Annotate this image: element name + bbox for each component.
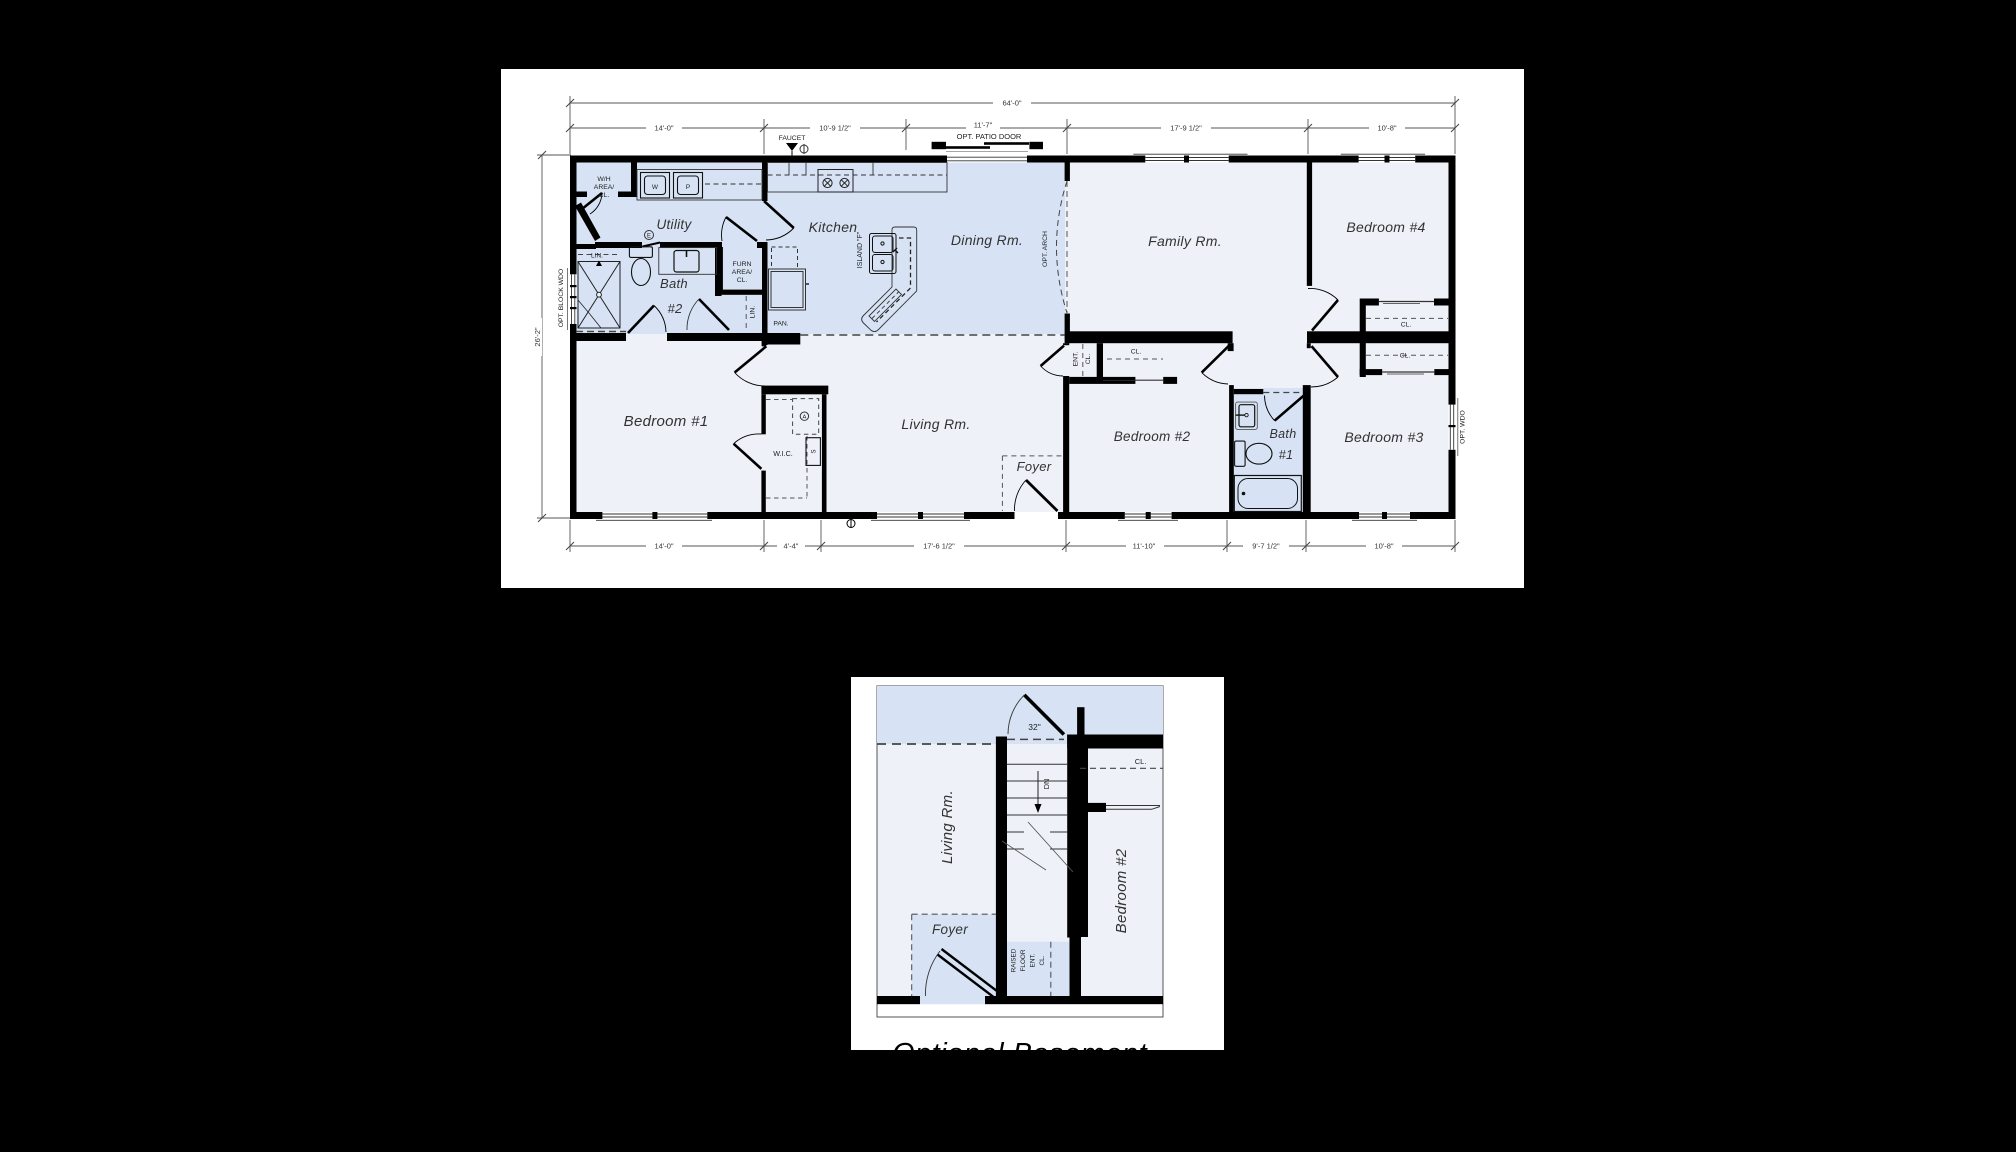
svg-text:FAUCET: FAUCET xyxy=(779,135,806,142)
svg-text:Bedroom #1: Bedroom #1 xyxy=(624,413,709,430)
svg-text:Bedroom #4: Bedroom #4 xyxy=(1346,219,1425,235)
svg-text:ENT.: ENT. xyxy=(1030,953,1037,967)
svg-text:PAN.: PAN. xyxy=(773,321,788,328)
svg-text:Kitchen: Kitchen xyxy=(809,219,858,235)
svg-text:Bath: Bath xyxy=(1270,427,1297,441)
svg-text:10'-9 1/2": 10'-9 1/2" xyxy=(819,124,851,133)
svg-text:P: P xyxy=(686,184,690,191)
svg-text:OPT. BLOCK WDO: OPT. BLOCK WDO xyxy=(558,269,565,328)
svg-text:S: S xyxy=(811,449,818,453)
svg-text:LIN.: LIN. xyxy=(750,306,757,319)
svg-text:W.I.C.: W.I.C. xyxy=(773,449,793,458)
svg-text:14'-0": 14'-0" xyxy=(654,542,673,551)
svg-text:AREA/: AREA/ xyxy=(732,269,753,276)
svg-text:11'-10": 11'-10" xyxy=(1133,542,1156,551)
svg-text:64'-0": 64'-0" xyxy=(1002,99,1021,108)
svg-text:CL.: CL. xyxy=(1400,353,1411,360)
svg-text:CL.: CL. xyxy=(1135,757,1147,766)
svg-text:CL.: CL. xyxy=(1085,354,1092,365)
svg-text:Bedroom #3: Bedroom #3 xyxy=(1344,429,1423,445)
svg-text:AREA/: AREA/ xyxy=(594,184,615,191)
svg-text:#1: #1 xyxy=(1279,448,1294,462)
svg-text:14'-0": 14'-0" xyxy=(654,124,673,133)
svg-text:17'-9 1/2": 17'-9 1/2" xyxy=(1170,124,1202,133)
svg-text:#2: #2 xyxy=(667,301,683,316)
svg-text:W: W xyxy=(652,184,659,191)
svg-text:FLOOR: FLOOR xyxy=(1020,949,1027,971)
svg-text:OPT. ARCH: OPT. ARCH xyxy=(1042,231,1049,267)
svg-text:CL.: CL. xyxy=(1401,322,1412,329)
svg-text:Optional Basement: Optional Basement xyxy=(892,1038,1149,1070)
svg-text:32": 32" xyxy=(1028,722,1040,732)
svg-text:OPT. PATIO DOOR: OPT. PATIO DOOR xyxy=(957,132,1022,141)
svg-text:Foyer: Foyer xyxy=(1017,459,1052,474)
svg-text:FURN: FURN xyxy=(733,261,752,268)
svg-text:CL.: CL. xyxy=(1131,349,1142,356)
svg-text:LIN.: LIN. xyxy=(591,253,603,260)
svg-text:Living Rm.: Living Rm. xyxy=(939,790,956,864)
svg-text:W/H: W/H xyxy=(597,176,610,183)
svg-text:DN: DN xyxy=(1042,779,1051,790)
svg-text:CL.: CL. xyxy=(737,277,748,284)
svg-text:Bedroom #2: Bedroom #2 xyxy=(1114,429,1191,444)
svg-text:CL.: CL. xyxy=(1039,955,1046,965)
svg-text:Family Rm.: Family Rm. xyxy=(1148,233,1222,249)
svg-text:E: E xyxy=(647,234,651,240)
svg-text:Utility: Utility xyxy=(656,217,692,232)
svg-text:4'-4": 4'-4" xyxy=(784,542,799,551)
svg-text:Living Rm.: Living Rm. xyxy=(901,416,970,432)
svg-text:Bath: Bath xyxy=(660,276,688,291)
svg-text:Bedroom #2: Bedroom #2 xyxy=(1113,848,1130,933)
svg-text:Dining Rm.: Dining Rm. xyxy=(951,232,1023,248)
svg-text:26'-2": 26'-2" xyxy=(533,327,542,346)
svg-text:17'-6 1/2": 17'-6 1/2" xyxy=(923,542,955,551)
svg-text:ISLAND "F": ISLAND "F" xyxy=(857,231,864,268)
svg-text:RAISED: RAISED xyxy=(1011,948,1018,972)
svg-text:10'-8": 10'-8" xyxy=(1377,124,1396,133)
svg-text:Foyer: Foyer xyxy=(932,922,968,937)
svg-text:ENT.: ENT. xyxy=(1073,352,1080,367)
svg-text:CL.: CL. xyxy=(599,192,610,199)
svg-text:10'-8": 10'-8" xyxy=(1374,542,1393,551)
svg-text:11'-7": 11'-7" xyxy=(974,121,993,130)
svg-text:9'-7 1/2": 9'-7 1/2" xyxy=(1252,542,1280,551)
svg-text:OPT. WDO: OPT. WDO xyxy=(1460,410,1467,444)
svg-text:A: A xyxy=(802,415,806,421)
